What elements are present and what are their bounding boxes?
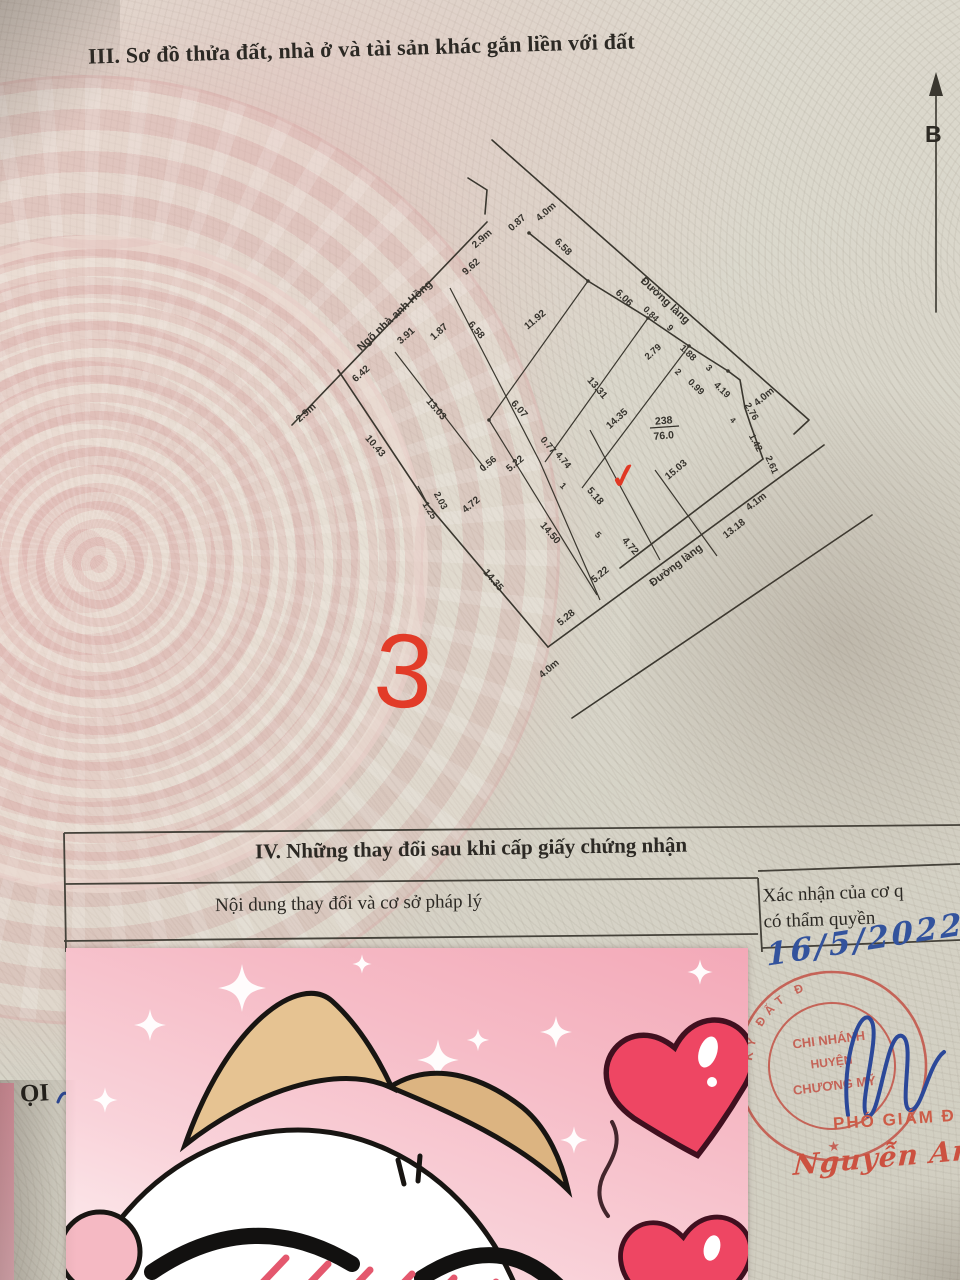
cat-ear-left [185,993,392,1145]
cat-cheek [66,1212,140,1280]
sticker-edge-strip [0,1083,14,1280]
certificate-page: { "document": { "section3_title": "III. … [0,0,960,1280]
heart-squiggle [600,1122,617,1216]
cat-head [66,993,568,1280]
cat-sticker [66,948,748,1280]
heart-icons [599,1013,748,1280]
sticker-overlay [66,948,748,1280]
margin-text: ỌI [19,1079,50,1108]
